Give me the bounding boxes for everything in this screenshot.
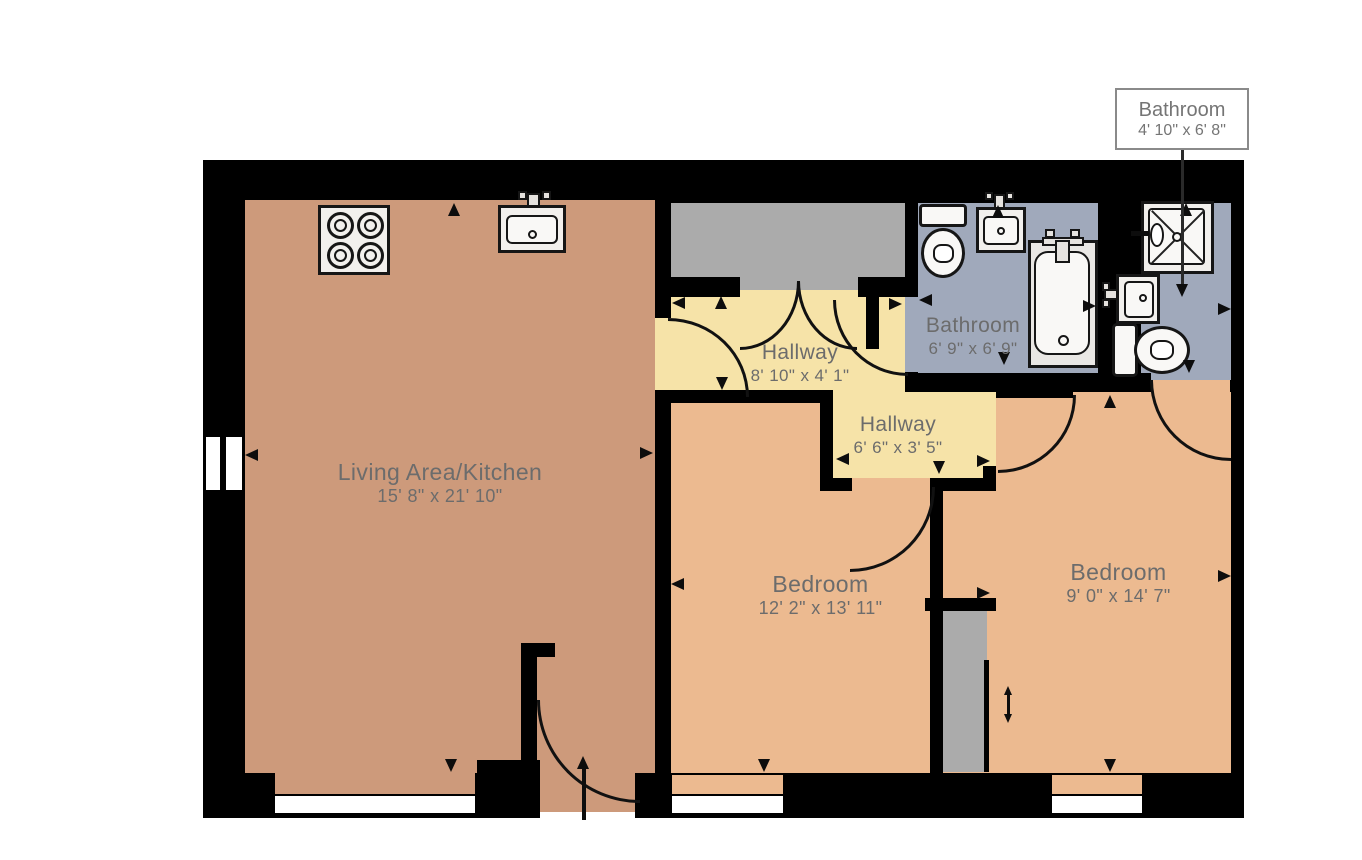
dimension-arrow xyxy=(448,203,460,216)
bathroom-sink-icon xyxy=(1116,274,1160,324)
entry-arrow xyxy=(582,766,586,820)
dimension-arrow xyxy=(671,578,684,590)
room-dims: 12' 2" x 13' 11" xyxy=(718,598,923,620)
dimension-arrow xyxy=(1218,303,1231,315)
wall xyxy=(983,466,996,491)
wall xyxy=(537,643,555,657)
room-label-bathroom1: Bathroom 6' 9" x 6' 9" xyxy=(873,313,1073,359)
room-dims: 6' 6" x 3' 5" xyxy=(798,438,998,459)
room-label-hallway2: Hallway 6' 6" x 3' 5" xyxy=(798,412,998,458)
faucet-handle-icon xyxy=(1102,299,1110,308)
entrance-opening xyxy=(540,812,635,822)
room-dims: 8' 10" x 4' 1" xyxy=(700,366,900,387)
room-dims: 4' 10" x 6' 8" xyxy=(1117,122,1247,140)
window-mullion xyxy=(220,437,226,490)
tub-spout-icon xyxy=(1055,240,1070,263)
burner-icon xyxy=(357,212,384,239)
wall xyxy=(668,277,740,297)
sliding-door-arrow xyxy=(1007,692,1010,716)
dimension-arrow xyxy=(977,587,990,599)
wall xyxy=(905,160,918,297)
faucet-handle-icon xyxy=(985,192,993,200)
dimension-arrow xyxy=(1104,759,1116,772)
window-living xyxy=(275,796,475,813)
faucet-handle-icon xyxy=(1006,192,1014,200)
burner-icon xyxy=(357,242,384,269)
sliding-door-arrow-head xyxy=(1004,714,1012,723)
dimension-arrow xyxy=(889,298,902,310)
room-name: Hallway xyxy=(700,340,900,366)
dimension-arrow xyxy=(1183,360,1195,373)
dimension-arrow xyxy=(445,759,457,772)
room-label-hallway1: Hallway 8' 10" x 4' 1" xyxy=(700,340,900,386)
drain-icon xyxy=(528,230,537,239)
room-dims: 6' 9" x 6' 9" xyxy=(873,339,1073,360)
shower-icon xyxy=(1141,201,1214,274)
toilet-icon xyxy=(1134,326,1190,374)
room-name: Bathroom xyxy=(1117,99,1247,122)
wall xyxy=(930,478,943,773)
dimension-arrow xyxy=(933,461,945,474)
floor-plan: Living Area/Kitchen 15' 8" x 21' 10" Hal… xyxy=(0,0,1362,860)
wall xyxy=(477,760,540,818)
burner-icon xyxy=(327,212,354,239)
room-label-living: Living Area/Kitchen 15' 8" x 21' 10" xyxy=(320,458,560,508)
room-name: Bedroom xyxy=(718,570,923,598)
toilet-icon xyxy=(921,228,965,278)
callout-arrow-head xyxy=(1176,284,1188,297)
dimension-arrow xyxy=(992,205,1004,218)
room-label-bathroom2-callout: Bathroom 4' 10" x 6' 8" xyxy=(1115,88,1249,150)
sliding-door-arrow-head xyxy=(1004,686,1012,695)
dimension-arrow xyxy=(245,449,258,461)
room-dims: 9' 0" x 14' 7" xyxy=(1016,586,1221,608)
dimension-arrow xyxy=(919,294,932,306)
sliding-door xyxy=(984,660,989,772)
dimension-arrow xyxy=(1104,395,1116,408)
window-bedroom1 xyxy=(672,796,783,813)
dimension-arrow xyxy=(672,297,685,309)
burner-icon xyxy=(327,242,354,269)
dimension-arrow xyxy=(758,759,770,772)
dimension-arrow xyxy=(715,296,727,309)
room-label-bedroom1: Bedroom 12' 2" x 13' 11" xyxy=(718,570,923,620)
window-bedroom2 xyxy=(1052,796,1142,813)
dimension-arrow xyxy=(640,447,653,459)
room-dims: 15' 8" x 21' 10" xyxy=(320,486,560,508)
bay-window-sill-bedroom1 xyxy=(672,775,783,794)
wall xyxy=(820,478,852,491)
room-name: Hallway xyxy=(798,412,998,438)
kitchen-sink-icon xyxy=(498,205,566,253)
entry-arrow-head xyxy=(577,756,589,769)
room-name: Living Area/Kitchen xyxy=(320,458,560,486)
faucet-handle-icon xyxy=(542,191,551,200)
soap-dish-icon xyxy=(1150,223,1164,247)
sliding-closet-floor xyxy=(941,611,987,772)
wall xyxy=(655,398,671,773)
bay-window-sill-bedroom2 xyxy=(1052,775,1142,794)
stove-icon xyxy=(318,205,390,275)
callout-leader-line xyxy=(1181,149,1184,285)
toilet-cistern-icon xyxy=(919,204,967,227)
dimension-arrow xyxy=(1083,300,1096,312)
room-name: Bedroom xyxy=(1016,558,1221,586)
faucet-handle-icon xyxy=(518,191,527,200)
drain-icon xyxy=(1139,294,1147,302)
bay-window-sill-living xyxy=(275,773,475,794)
shower-arm-icon xyxy=(1131,231,1149,236)
room-label-bedroom2: Bedroom 9' 0" x 14' 7" xyxy=(1016,558,1221,608)
drain-icon xyxy=(997,227,1005,235)
room-name: Bathroom xyxy=(873,313,1073,339)
wall xyxy=(925,598,996,611)
